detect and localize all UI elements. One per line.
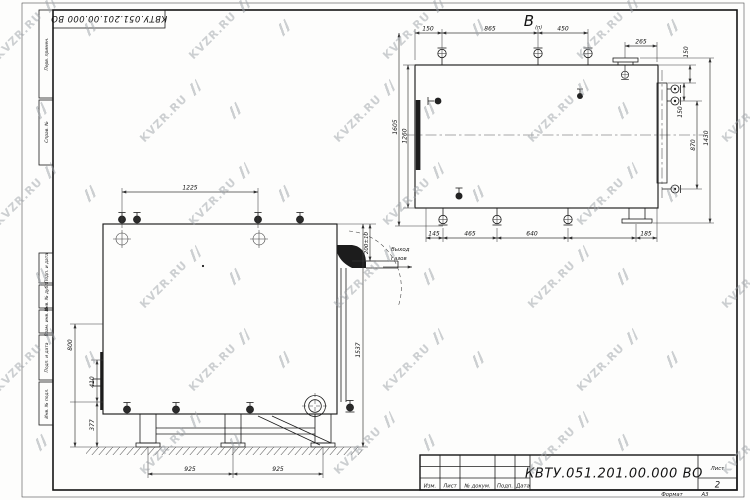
dim-label: 925 (184, 466, 196, 473)
col-podp: Подп. (497, 484, 513, 490)
fitting-left (428, 97, 441, 105)
extension-lines (70, 188, 376, 478)
dim-label: 1537 (355, 342, 362, 357)
dim-label: 185 (640, 231, 652, 238)
valve-icon (346, 401, 355, 413)
front-view: Выход газов (67, 185, 412, 479)
margin-sprav-no: Справ. № (44, 121, 50, 143)
dim-label: 450 (557, 26, 569, 33)
valve-icon (439, 208, 448, 225)
valve-icon (133, 213, 142, 225)
nozzle-mark (250, 230, 268, 248)
valve-icon (123, 403, 132, 415)
drawing-canvas: Перв. примен. Справ. № Подп. и дата Инв.… (0, 0, 750, 500)
gauge-valve (662, 185, 681, 193)
ground (70, 447, 368, 455)
dim-label: 410 (89, 376, 96, 388)
support-legs (136, 414, 335, 447)
dim-label: 640 (526, 231, 538, 238)
dim-label: 465 (464, 231, 476, 238)
col-data: Дата (515, 484, 530, 490)
dimension-lines (75, 192, 370, 474)
margin-podp-data-1: Подп. и дата (44, 253, 50, 283)
dim-label: 265 (635, 39, 647, 46)
outlet-caption-line2: газов (391, 256, 407, 262)
dim-label: 145 (428, 231, 440, 238)
valve-icon (246, 403, 255, 415)
dim-label: 1260 (402, 128, 409, 143)
doc-number: КВТУ.051.201.00.000 ВО (525, 467, 703, 482)
top-view: В(п) (392, 12, 714, 242)
title-block: Изм. Лист № докум. Подп. Дата КВТУ.051.2… (420, 455, 737, 498)
col-list: Лист (442, 484, 457, 490)
dim-label: 925 (272, 466, 284, 473)
fitting-inside-bottom (456, 188, 463, 200)
dim-label: 150 (677, 106, 684, 118)
burner-strip (416, 100, 421, 170)
valve-icon (621, 65, 629, 79)
format-label: Формат (661, 492, 683, 498)
valve-icon (584, 48, 593, 65)
sheet-label: Лист (710, 466, 725, 472)
valve-icon (172, 403, 181, 415)
gauge-valve (667, 97, 681, 105)
outlet-caption-line1: Выход (391, 247, 410, 253)
tank-front-outline (103, 224, 337, 414)
dim-label: 1225 (182, 185, 197, 192)
margin-podp-data-2: Подп. и дата (44, 342, 50, 372)
valve-icon (534, 48, 543, 65)
dim-label: 150 (683, 46, 690, 58)
valve-icon (564, 208, 573, 225)
dim-label: 150 (422, 26, 434, 33)
sheet-frame (22, 3, 744, 497)
margin-column: Перв. примен. Справ. № Подп. и дата Инв.… (39, 10, 53, 425)
nozzle-mark (113, 230, 131, 248)
dim-label: 377 (89, 419, 96, 431)
tank-plan-outline (415, 65, 658, 208)
dim-label: 1430 (703, 130, 710, 145)
format-value: А3 (701, 492, 710, 498)
margin-vzam-inv: Взам. инв. № (44, 306, 50, 336)
dim-label: 1605 (392, 119, 399, 134)
dim-label: 800 (67, 339, 74, 351)
sheet-number: 2 (715, 481, 720, 491)
margin-inv-podl: Инв. № подл. (44, 388, 50, 418)
valve-icon (296, 213, 305, 225)
margin-perv-primen: Перв. примен. (44, 38, 50, 71)
dim-label: 200±10 (364, 231, 370, 254)
col-izm: Изм. (424, 484, 436, 490)
stamp-doc-number: КВТУ.051.201.00.000 ВО (51, 13, 168, 23)
fitting-inside-top (577, 89, 583, 99)
view-label: В(п) (524, 12, 543, 31)
dim-label: 865 (484, 26, 496, 33)
gauge-valve (667, 85, 681, 93)
dim-label: 870 (690, 139, 697, 151)
valve-icon (438, 48, 447, 65)
flange-bottom (622, 208, 652, 223)
valve-icon (493, 208, 502, 225)
top-stamp: КВТУ.051.201.00.000 ВО (51, 10, 168, 28)
flange-top (613, 58, 638, 65)
col-dokum: № докум. (463, 484, 490, 490)
drawing-sheet: { "watermark": { "text": "KVZR.RU", "col… (0, 0, 750, 500)
dimension-lines (399, 33, 710, 238)
